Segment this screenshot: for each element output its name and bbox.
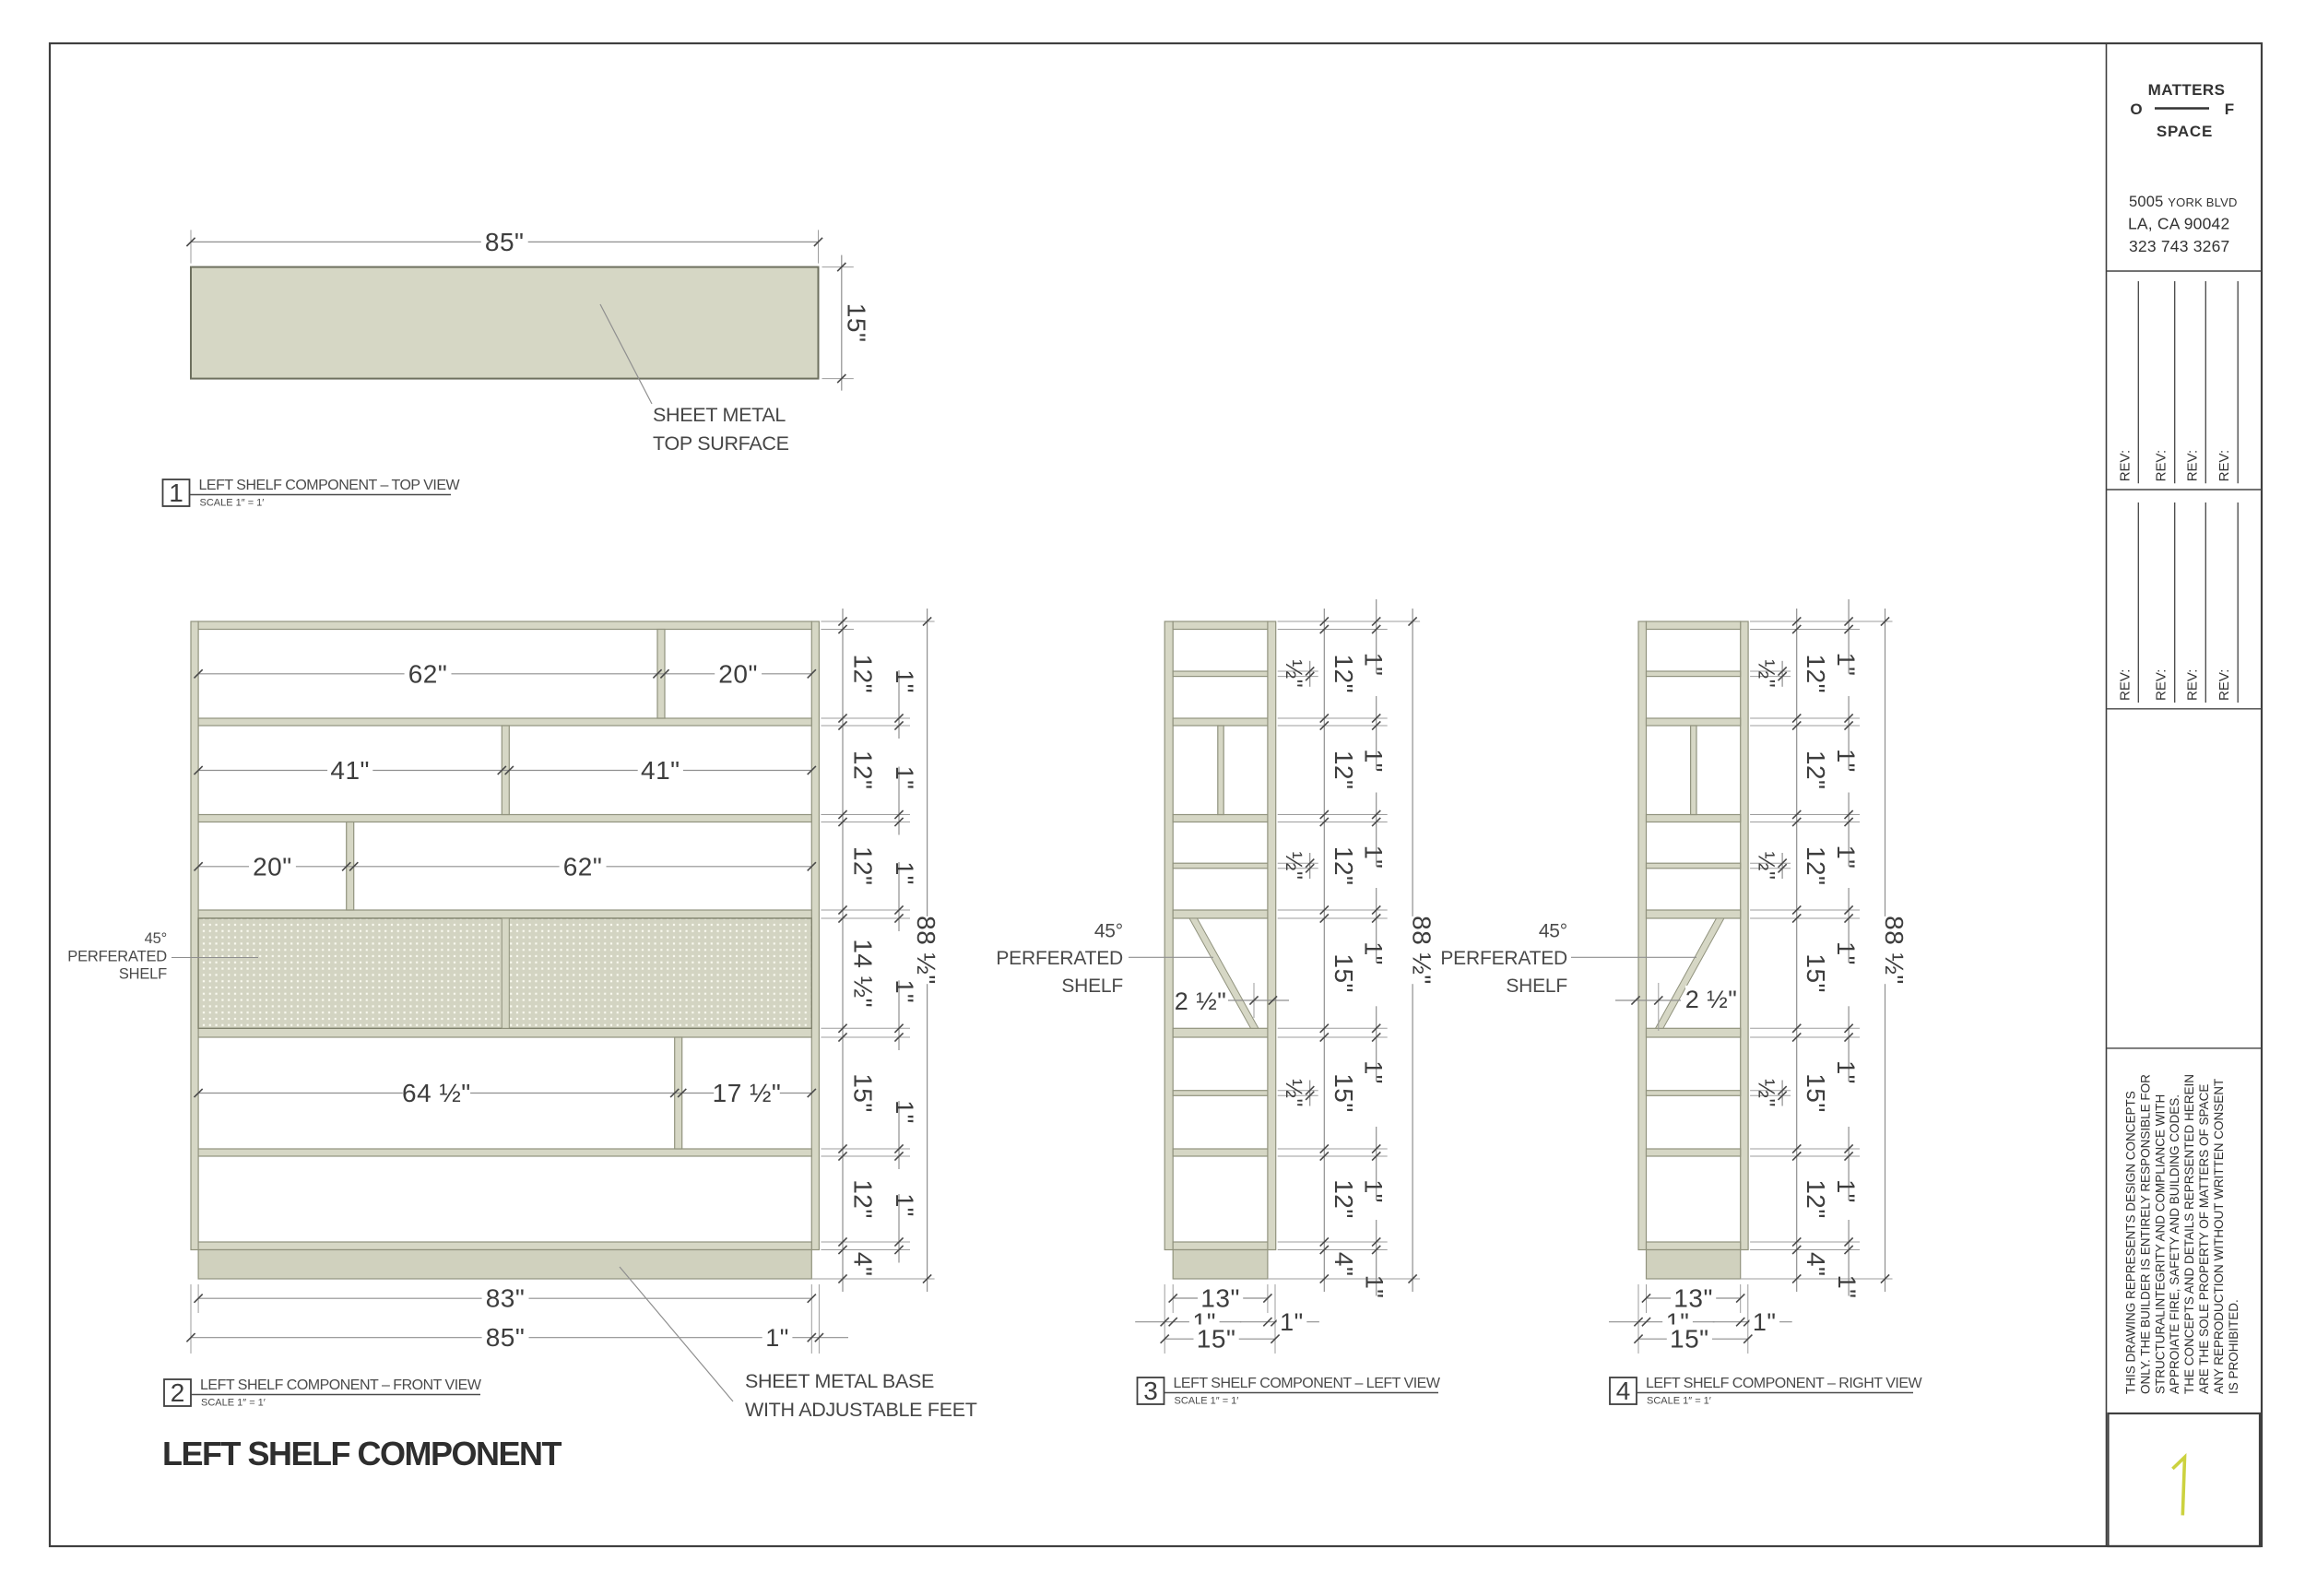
svg-text:LEFT SHELF COMPONENT: LEFT SHELF COMPONENT <box>162 1435 561 1472</box>
svg-text:2 ½": 2 ½" <box>1685 986 1738 1013</box>
svg-text:1": 1" <box>1360 1060 1388 1084</box>
svg-text:20": 20" <box>253 852 292 881</box>
svg-text:4": 4" <box>1330 1252 1358 1277</box>
svg-text:1": 1" <box>891 766 918 790</box>
svg-text:1": 1" <box>1360 1179 1388 1203</box>
svg-text:12": 12" <box>1802 846 1830 886</box>
svg-text:F: F <box>2225 100 2234 118</box>
svg-text:12": 12" <box>1330 1179 1358 1219</box>
svg-text:MATTERS: MATTERS <box>2148 81 2226 99</box>
svg-text:88 ½": 88 ½" <box>912 916 940 985</box>
svg-text:STRUCTURALINTEGRITY AND COMPLI: STRUCTURALINTEGRITY AND COMPLIANCE WITH <box>2153 1094 2167 1394</box>
svg-text:323 743 3267: 323 743 3267 <box>2129 237 2229 255</box>
svg-text:REV:: REV: <box>2154 669 2169 701</box>
svg-text:LEFT SHELF COMPONENT – FRONT V: LEFT SHELF COMPONENT – FRONT VIEW <box>200 1377 482 1393</box>
svg-text:ONLY. THE BUILDER IS ENTIRELY: ONLY. THE BUILDER IS ENTIRELY RESPONSIBL… <box>2138 1074 2152 1394</box>
svg-text:SHEET METAL: SHEET METAL <box>653 404 786 426</box>
svg-text:12": 12" <box>849 846 878 886</box>
svg-text:12": 12" <box>849 1179 878 1219</box>
svg-text:1": 1" <box>1832 1179 1860 1203</box>
svg-text:THE CONCEPTS AND DETAILS REPRS: THE CONCEPTS AND DETAILS REPRSENTED HERE… <box>2182 1074 2196 1394</box>
svg-text:REV:: REV: <box>2216 669 2232 701</box>
svg-text:88 ½": 88 ½" <box>1408 916 1436 985</box>
svg-text:SHELF: SHELF <box>1061 975 1123 997</box>
svg-text:45°: 45° <box>145 930 167 947</box>
svg-text:41": 41" <box>330 756 370 785</box>
svg-text:12": 12" <box>849 751 878 790</box>
svg-text:TOP SURFACE: TOP SURFACE <box>653 432 789 455</box>
svg-text:SCALE 1″ = 1′: SCALE 1″ = 1′ <box>200 498 265 509</box>
svg-text:15": 15" <box>1197 1325 1236 1354</box>
svg-text:4: 4 <box>1616 1377 1631 1405</box>
svg-text:½": ½" <box>1281 659 1306 688</box>
svg-text:15": 15" <box>1330 1073 1358 1113</box>
svg-text:REV:: REV: <box>2154 450 2169 481</box>
svg-text:ARE THE SOLE PROPERTY OF MATTE: ARE THE SOLE PROPERTY OF MATTERS OF SPAC… <box>2197 1084 2211 1394</box>
svg-text:45°: 45° <box>1539 921 1567 942</box>
svg-text:12": 12" <box>1802 655 1830 694</box>
svg-text:SCALE 1″ = 1′: SCALE 1″ = 1′ <box>1647 1396 1711 1407</box>
svg-text:2 ½": 2 ½" <box>1175 987 1227 1015</box>
svg-text:14 ½": 14 ½" <box>849 939 878 1008</box>
svg-text:1": 1" <box>1832 653 1860 677</box>
svg-text:1": 1" <box>1360 941 1388 965</box>
svg-text:PERFERATED: PERFERATED <box>1440 948 1567 969</box>
svg-text:62": 62" <box>408 659 448 688</box>
svg-text:3: 3 <box>1143 1377 1158 1405</box>
svg-text:LA, CA 90042: LA, CA 90042 <box>2128 215 2229 233</box>
svg-text:½": ½" <box>1281 852 1306 881</box>
svg-text:REV:: REV: <box>2216 450 2232 481</box>
svg-text:15": 15" <box>1670 1325 1709 1354</box>
svg-text:85": 85" <box>486 1323 526 1352</box>
svg-text:ANY REPRODUCTION WITHOUT WRITT: ANY REPRODUCTION WITHOUT WRITTEN CONSENT <box>2212 1079 2226 1394</box>
svg-text:4": 4" <box>849 1252 878 1277</box>
svg-text:15": 15" <box>1802 953 1830 993</box>
svg-text:2: 2 <box>171 1378 185 1407</box>
svg-text:PERFERATED: PERFERATED <box>996 948 1123 969</box>
svg-text:45°: 45° <box>1094 921 1123 942</box>
svg-text:REV:: REV: <box>2117 669 2133 701</box>
svg-text:1": 1" <box>1361 1275 1389 1299</box>
svg-text:1": 1" <box>1832 845 1860 869</box>
svg-text:½": ½" <box>1754 659 1779 688</box>
svg-text:83": 83" <box>486 1284 526 1313</box>
svg-text:1": 1" <box>1832 749 1860 773</box>
svg-text:1": 1" <box>1360 845 1388 869</box>
svg-text:12": 12" <box>1330 751 1358 790</box>
svg-text:12": 12" <box>1802 751 1830 790</box>
svg-text:12": 12" <box>1330 655 1358 694</box>
svg-text:LEFT SHELF COMPONENT – RIGHT V: LEFT SHELF COMPONENT – RIGHT VIEW <box>1646 1376 1923 1391</box>
svg-text:62": 62" <box>563 852 603 881</box>
svg-text:1": 1" <box>1360 653 1388 677</box>
svg-text:1": 1" <box>891 861 918 885</box>
svg-text:1: 1 <box>169 479 183 507</box>
svg-text:LEFT SHELF COMPONENT – LEFT VI: LEFT SHELF COMPONENT – LEFT VIEW <box>1174 1376 1441 1391</box>
svg-text:1": 1" <box>891 1100 918 1124</box>
svg-text:SPACE: SPACE <box>2157 123 2213 140</box>
svg-text:SHELF: SHELF <box>1506 975 1567 997</box>
svg-text:4": 4" <box>1802 1252 1830 1277</box>
svg-text:O: O <box>2130 100 2142 118</box>
svg-text:SCALE 1″ = 1′: SCALE 1″ = 1′ <box>201 1398 266 1409</box>
svg-text:1": 1" <box>1832 1060 1860 1084</box>
svg-text:17 ½": 17 ½" <box>713 1079 782 1107</box>
svg-text:1": 1" <box>1832 941 1860 965</box>
svg-text:12": 12" <box>1802 1179 1830 1219</box>
svg-text:15": 15" <box>849 1073 878 1113</box>
svg-text:15": 15" <box>1802 1073 1830 1113</box>
svg-text:1": 1" <box>891 1193 918 1217</box>
svg-text:SHEET METAL BASE: SHEET METAL BASE <box>745 1370 934 1392</box>
svg-text:½": ½" <box>1754 1079 1779 1107</box>
svg-text:20": 20" <box>718 659 758 688</box>
svg-text:REV:: REV: <box>2117 450 2133 481</box>
svg-text:12": 12" <box>1330 846 1358 886</box>
svg-text:SHELF: SHELF <box>119 966 167 983</box>
svg-text:½": ½" <box>1754 852 1779 881</box>
svg-text:85": 85" <box>485 228 525 256</box>
svg-text:LEFT SHELF COMPONENT – TOP VIE: LEFT SHELF COMPONENT – TOP VIEW <box>199 478 461 493</box>
svg-text:12": 12" <box>849 655 878 694</box>
svg-text:15": 15" <box>1330 953 1358 993</box>
svg-text:IS PROHIBITED.: IS PROHIBITED. <box>2227 1299 2240 1394</box>
svg-text:SCALE 1″ = 1′: SCALE 1″ = 1′ <box>1175 1396 1239 1407</box>
svg-text:1": 1" <box>1360 749 1388 773</box>
svg-text:15": 15" <box>842 303 870 343</box>
svg-text:88 ½": 88 ½" <box>1880 916 1909 985</box>
svg-text:1": 1" <box>891 669 918 693</box>
svg-text:APPROIATE FIRE, SAFETY AND BUI: APPROIATE FIRE, SAFETY AND BUILDING CODE… <box>2168 1094 2181 1394</box>
svg-text:½": ½" <box>1281 1079 1306 1107</box>
svg-text:1": 1" <box>1280 1308 1304 1336</box>
svg-text:1": 1" <box>765 1324 789 1352</box>
svg-text:WITH ADJUSTABLE FEET: WITH ADJUSTABLE FEET <box>745 1399 977 1421</box>
svg-text:5005 YORK BLVD: 5005 YORK BLVD <box>2129 194 2238 210</box>
svg-text:1": 1" <box>1753 1308 1777 1336</box>
svg-text:PERFERATED: PERFERATED <box>67 949 167 965</box>
svg-text:64 ½": 64 ½" <box>402 1079 471 1107</box>
svg-text:1": 1" <box>1833 1275 1861 1299</box>
svg-text:THIS DRAWING REPRESENTS DESIGN: THIS DRAWING REPRESENTS DESIGN CONCEPTS <box>2124 1091 2138 1394</box>
svg-text:41": 41" <box>641 756 680 785</box>
svg-text:REV:: REV: <box>2184 669 2200 701</box>
svg-text:REV:: REV: <box>2184 450 2200 481</box>
